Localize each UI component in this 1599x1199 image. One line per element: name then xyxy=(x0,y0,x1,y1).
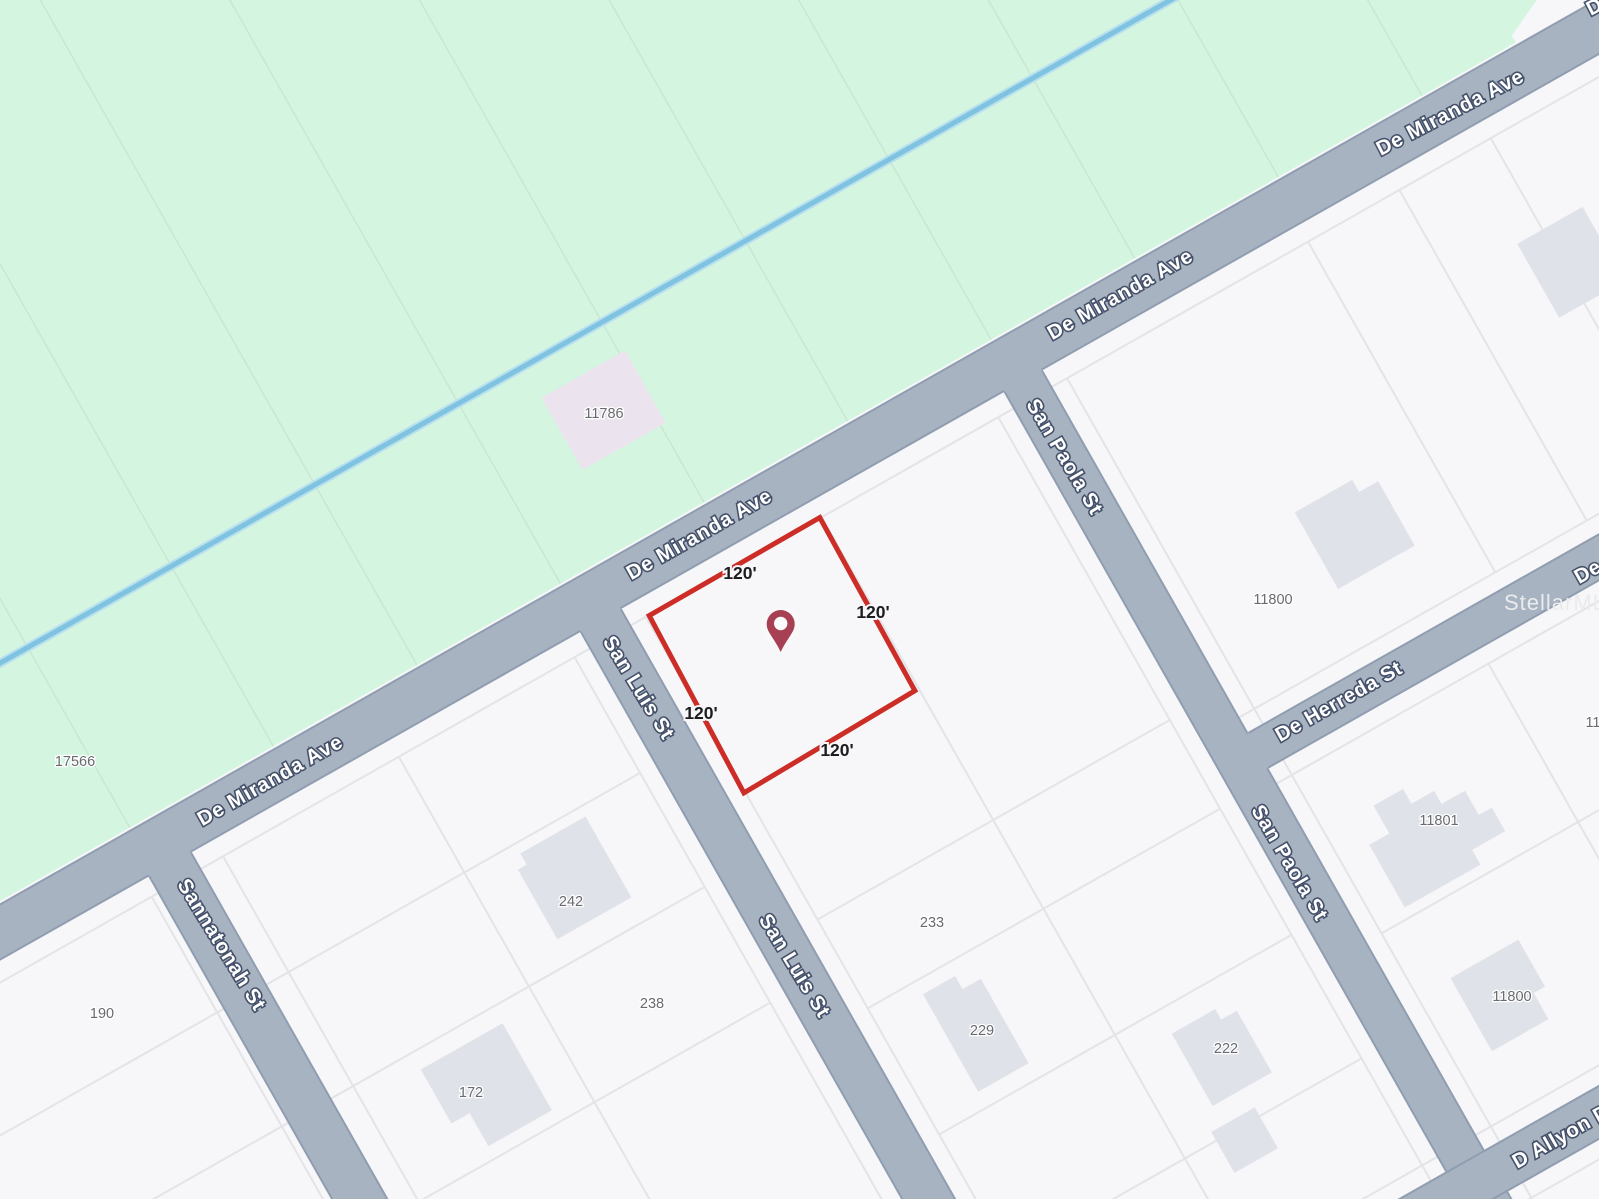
svg-text:11801: 11801 xyxy=(1419,813,1458,829)
svg-text:120': 120' xyxy=(723,563,756,583)
svg-text:11800: 11800 xyxy=(1253,592,1292,608)
svg-text:172: 172 xyxy=(459,1085,483,1101)
svg-text:120': 120' xyxy=(856,602,889,622)
svg-text:233: 233 xyxy=(920,915,944,931)
svg-text:118: 118 xyxy=(1585,715,1599,731)
svg-text:242: 242 xyxy=(559,894,583,910)
svg-text:17566: 17566 xyxy=(55,754,95,770)
svg-text:11786: 11786 xyxy=(584,406,623,422)
svg-text:229: 229 xyxy=(970,1023,994,1039)
svg-text:11800: 11800 xyxy=(1492,989,1531,1005)
svg-text:238: 238 xyxy=(640,996,664,1012)
svg-text:190: 190 xyxy=(90,1006,114,1022)
svg-text:StellarMLS: StellarMLS xyxy=(1504,590,1599,615)
svg-text:120': 120' xyxy=(820,740,853,760)
svg-text:120': 120' xyxy=(684,703,717,723)
svg-text:222: 222 xyxy=(1214,1041,1238,1057)
